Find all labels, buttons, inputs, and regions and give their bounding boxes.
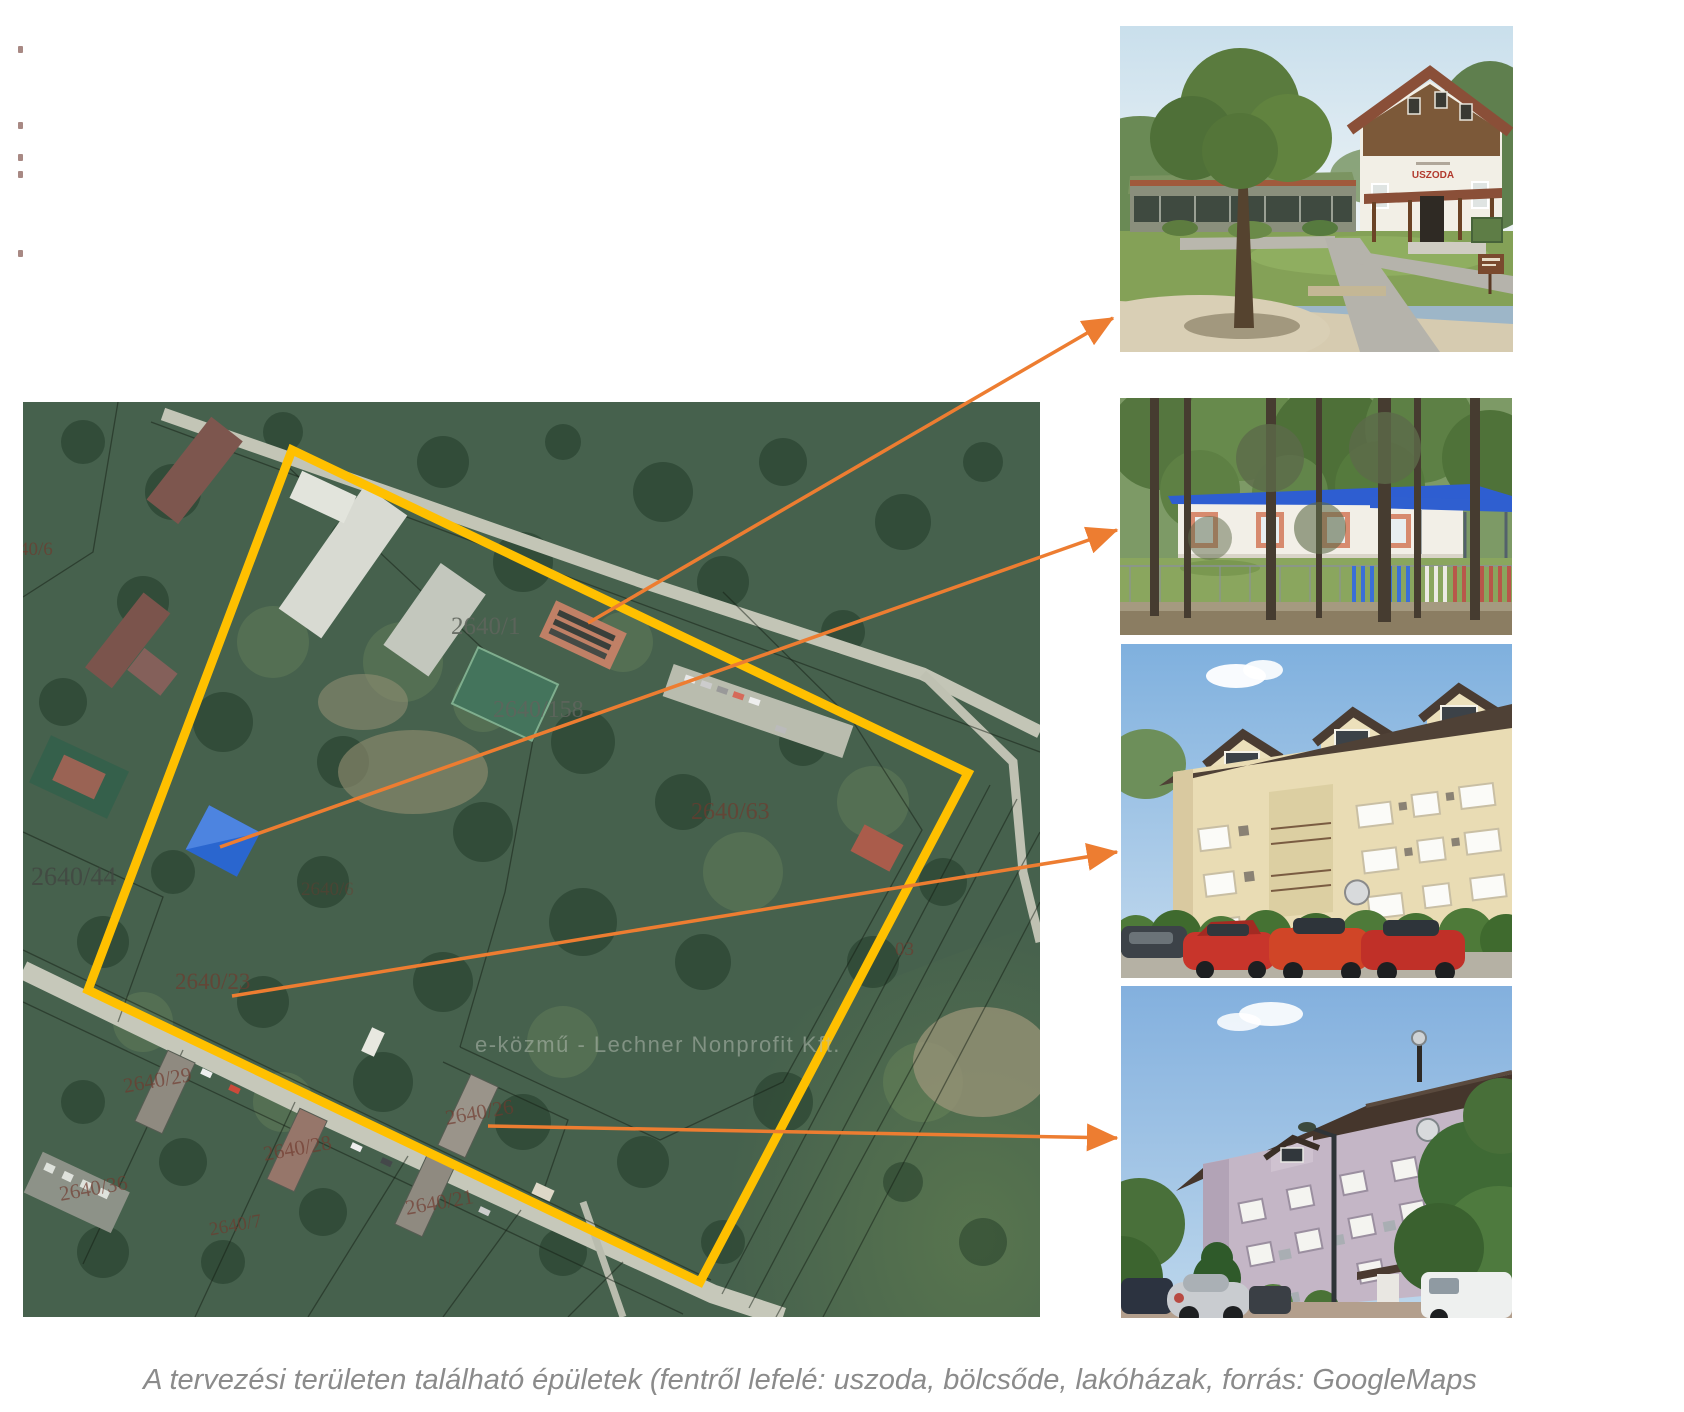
lakohaz2-photo-graphics (1121, 986, 1512, 1318)
parcel-label: 2640/23 (175, 970, 250, 993)
uszoda-photo-graphics: USZODA (1120, 26, 1513, 352)
parcel-label: 03 (895, 940, 914, 959)
photo-lakohaz-1 (1121, 644, 1512, 978)
parcel-label: 2640/63 (691, 800, 770, 824)
bolcsode-photo-graphics (1120, 398, 1512, 635)
page-edge-text-artifact (18, 122, 23, 129)
map-watermark: e-közmű - Lechner Nonprofit Kft. (475, 1032, 841, 1058)
page-edge-text-artifact (18, 154, 23, 161)
photo-uszoda: USZODA (1120, 26, 1513, 352)
aerial-map-image: 2640/1 2640/158 2640/44 2640/63 2640/23 … (23, 402, 1040, 1317)
page-edge-text-artifact (18, 250, 23, 257)
parcel-label: 40/6 (23, 540, 53, 559)
parcel-label: 2640/44 (31, 864, 116, 890)
parcel-label: 2640/158 (493, 698, 584, 722)
parcel-label: 2640/6 (301, 880, 354, 899)
page-edge-text-artifact (18, 171, 23, 178)
page-edge-text-artifact (18, 46, 23, 53)
photo-lakohaz-2 (1121, 986, 1512, 1318)
photo-bolcsode (1120, 398, 1512, 635)
uszoda-sign-text: USZODA (1412, 170, 1454, 181)
aerial-map-graphics (23, 402, 1040, 1317)
parcel-label: 2640/1 (451, 614, 520, 639)
lakohaz1-photo-graphics (1121, 644, 1512, 978)
figure-caption: A tervezési területen található épületek… (100, 1364, 1520, 1397)
